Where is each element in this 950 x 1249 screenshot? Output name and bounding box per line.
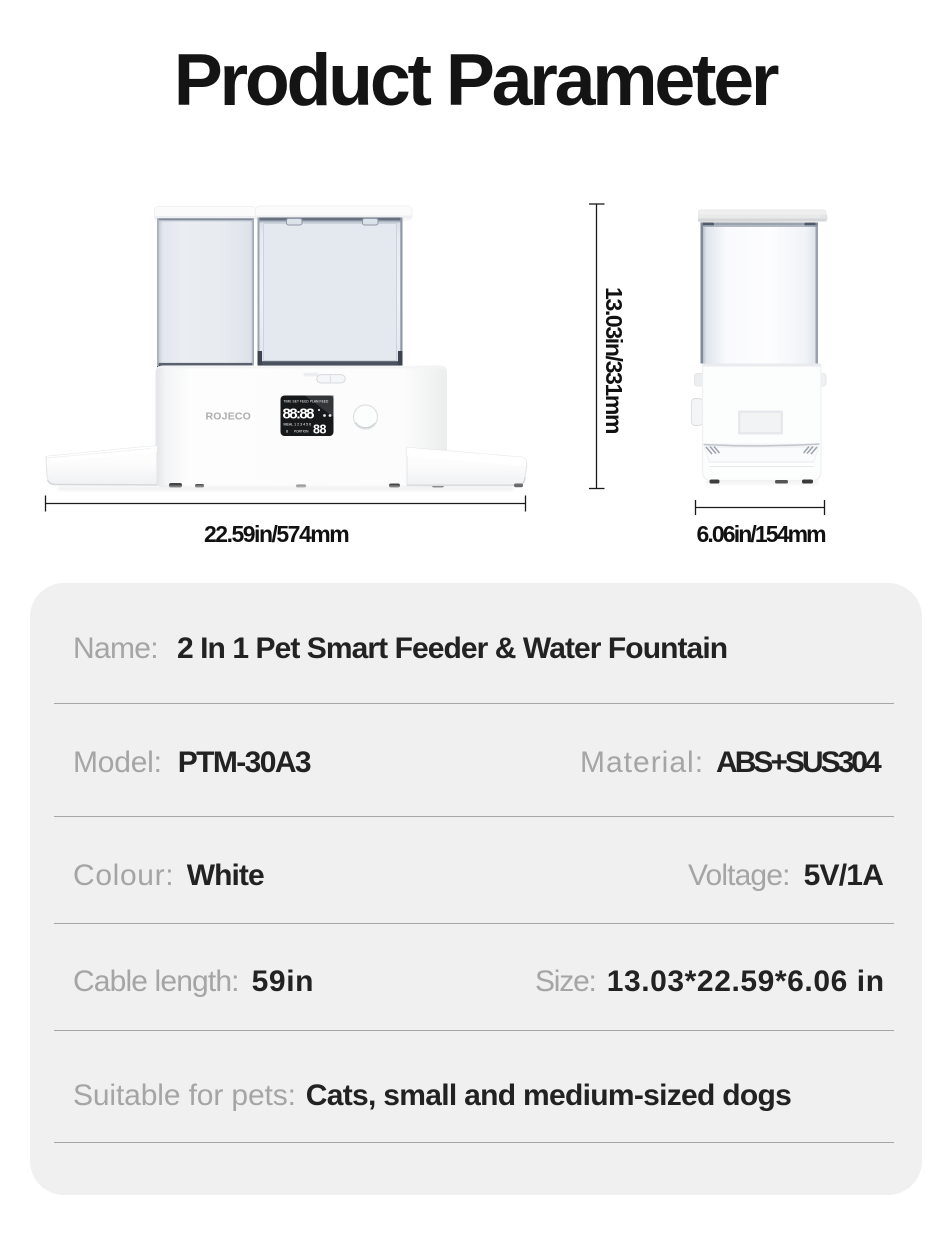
svg-text:MEAL 1 2 3 4 5 6: MEAL 1 2 3 4 5 6 — [284, 423, 312, 427]
svg-text:88:88: 88:88 — [283, 406, 315, 423]
svg-text:88: 88 — [313, 423, 326, 437]
svg-text:TIME SET FEED PLAN FEED: TIME SET FEED PLAN FEED — [284, 400, 330, 404]
svg-text:PORTION: PORTION — [294, 430, 309, 434]
svg-text:ROJECO: ROJECO — [206, 411, 252, 423]
svg-text:8: 8 — [286, 430, 288, 434]
